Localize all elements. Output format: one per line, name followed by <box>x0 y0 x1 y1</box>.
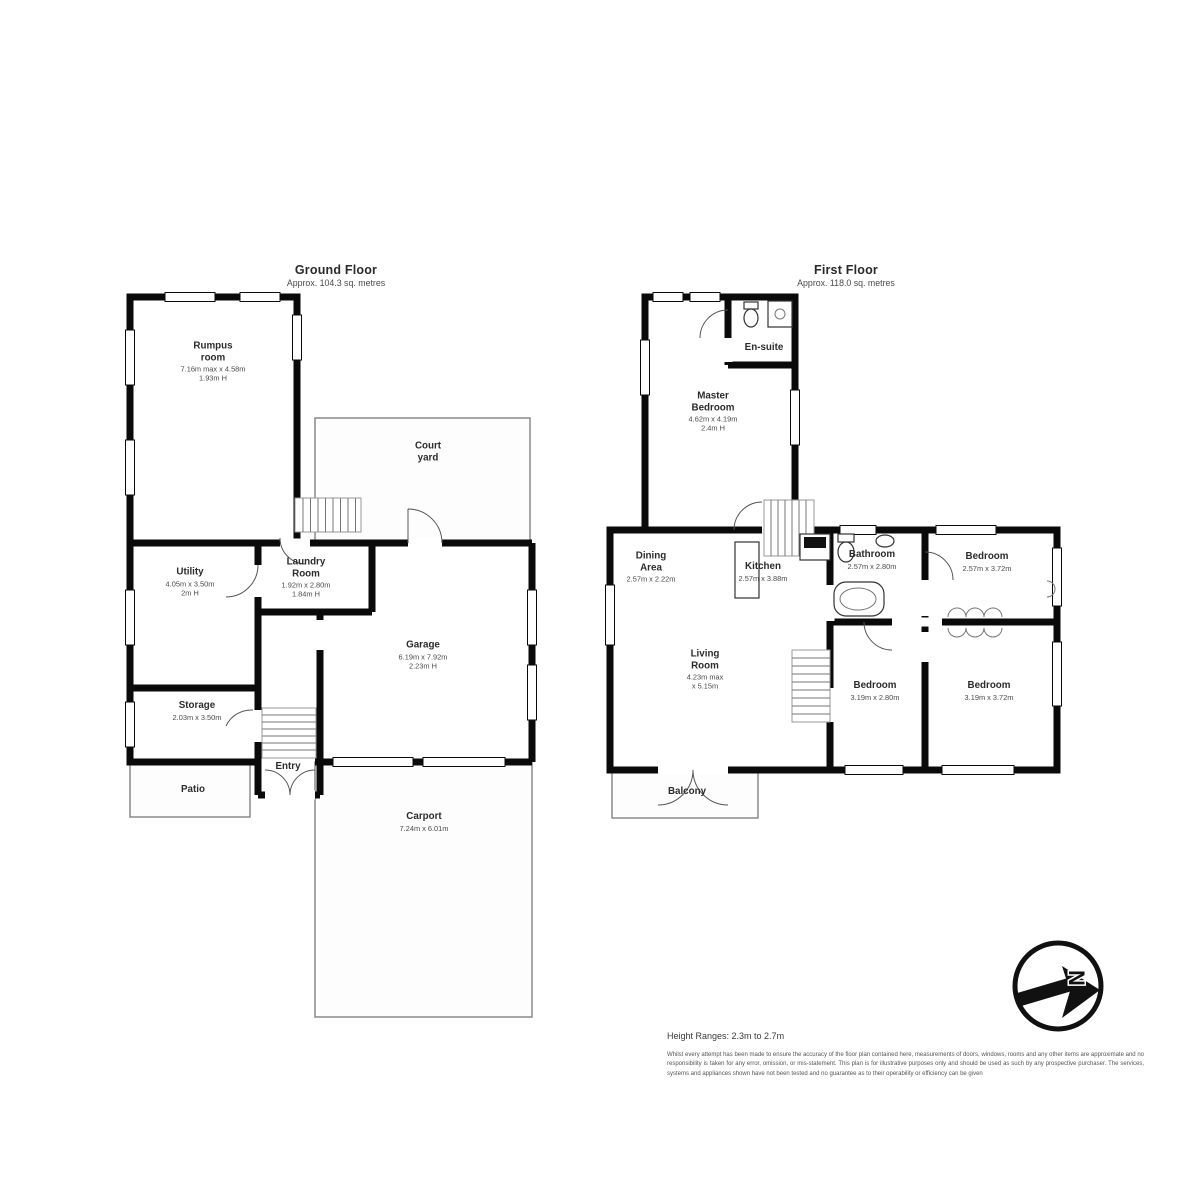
rumpus-walls <box>130 297 297 543</box>
kitchen-counter-icon <box>800 534 830 560</box>
disclaimer-text: Whilst every attempt has been made to en… <box>667 1051 1144 1079</box>
window <box>126 702 135 747</box>
laundry-walls <box>258 543 372 612</box>
window <box>293 315 302 360</box>
window <box>240 293 280 302</box>
floorplan-page: Ground Floor Approx. 104.3 sq. metres Fi… <box>0 0 1200 1200</box>
compass-north-icon: N <box>1010 938 1106 1034</box>
balcony-outline <box>612 770 758 818</box>
bath-icon <box>834 582 884 616</box>
window <box>126 440 135 495</box>
wardrobe-icon <box>948 581 1055 637</box>
first-floor-title: First Floor Approx. 118.0 sq. metres <box>736 263 956 288</box>
window <box>942 766 1014 775</box>
compass-north-label: N <box>1064 970 1089 986</box>
ensuite-shower-icon <box>768 301 792 327</box>
carport-outline <box>315 762 532 1017</box>
first-floor-area-text: Approx. 118.0 sq. metres <box>736 278 956 288</box>
patio-outline <box>130 762 250 817</box>
garage-door <box>423 758 505 767</box>
sink-icon <box>876 535 894 547</box>
window <box>840 526 876 535</box>
window <box>528 665 537 720</box>
ground-floor-plan <box>120 290 545 1030</box>
window <box>845 766 903 775</box>
window <box>528 590 537 645</box>
window <box>641 340 650 395</box>
master-bedroom-walls <box>645 297 795 530</box>
first-floor-plan <box>600 290 1070 835</box>
window <box>165 293 215 302</box>
window <box>126 590 135 645</box>
first-outdoor-outlines <box>612 770 758 818</box>
window <box>126 330 135 385</box>
height-ranges-note: Height Ranges: 2.3m to 2.7m <box>667 1031 784 1041</box>
window <box>1053 642 1062 706</box>
window <box>690 293 720 302</box>
window <box>936 526 996 535</box>
garage-walls <box>315 543 532 762</box>
window <box>791 390 800 445</box>
window <box>606 585 615 645</box>
toilet-icon <box>838 534 854 562</box>
first-floor-title-text: First Floor <box>736 263 956 277</box>
ground-floor-area-text: Approx. 104.3 sq. metres <box>226 278 446 288</box>
garage-door <box>333 758 413 767</box>
ground-floor-title-text: Ground Floor <box>226 263 446 277</box>
utility-storage-walls <box>130 543 258 762</box>
window <box>653 293 683 302</box>
ensuite-toilet-icon <box>744 302 758 327</box>
kitchen-pantry-outline <box>735 542 759 598</box>
ground-walls <box>130 297 532 795</box>
window <box>1053 548 1062 606</box>
ground-floor-title: Ground Floor Approx. 104.3 sq. metres <box>226 263 446 288</box>
